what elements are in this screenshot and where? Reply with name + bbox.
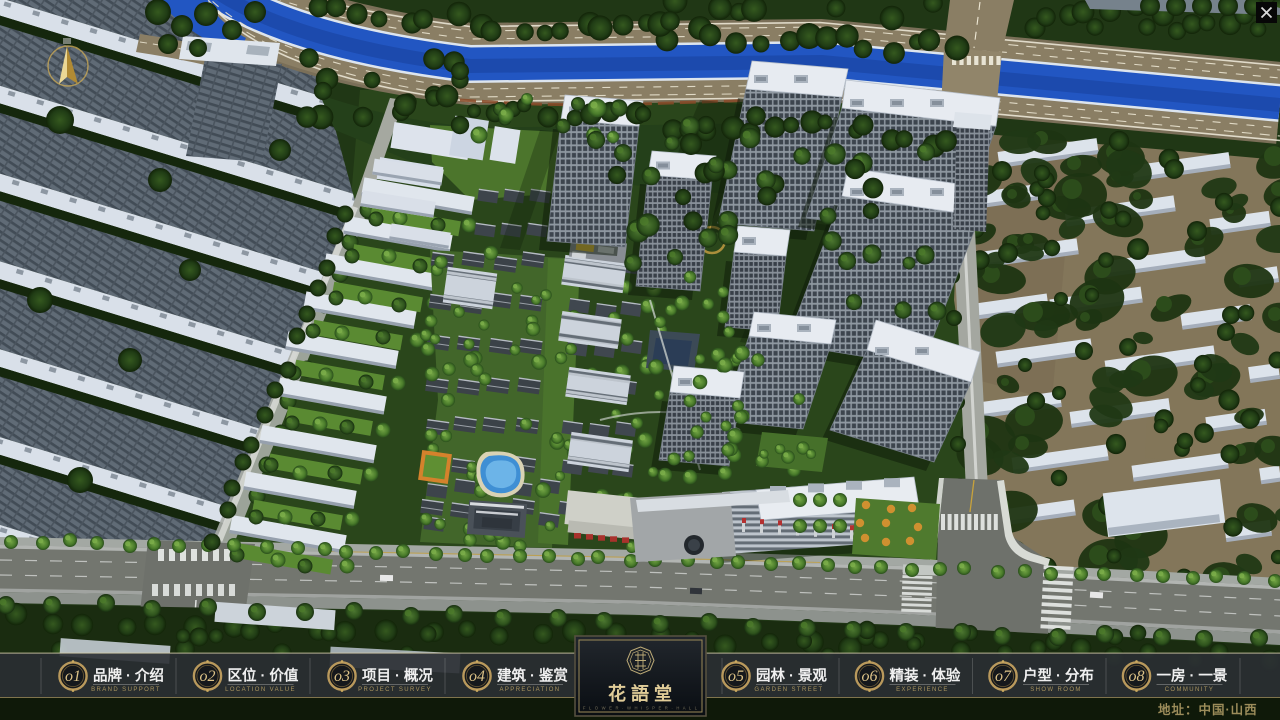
svg-text:o4: o4 xyxy=(469,668,485,685)
svg-text:o3: o3 xyxy=(334,668,350,685)
svg-text:APPRECIATION: APPRECIATION xyxy=(499,687,560,693)
svg-text:项目 · 概况: 项目 · 概况 xyxy=(362,667,433,685)
svg-text:o1: o1 xyxy=(65,668,81,685)
svg-text:一房 · 一景: 一房 · 一景 xyxy=(1157,667,1228,685)
svg-text:BRAND SUPPORT: BRAND SUPPORT xyxy=(91,687,161,693)
svg-text:o8: o8 xyxy=(1129,668,1145,685)
svg-text:COMMUNITY: COMMUNITY xyxy=(1165,687,1215,693)
svg-text:品牌 · 介绍: 品牌 · 介绍 xyxy=(93,667,164,685)
svg-text:o7: o7 xyxy=(995,668,1012,685)
svg-text:o6: o6 xyxy=(862,668,878,685)
svg-text:区位 · 价值: 区位 · 价值 xyxy=(228,667,299,685)
svg-text:花語堂: 花語堂 xyxy=(608,683,677,704)
svg-text:户型 · 分布: 户型 · 分布 xyxy=(1023,667,1094,685)
svg-text:园林 · 景观: 园林 · 景观 xyxy=(756,667,827,685)
svg-text:EXPERIENCE: EXPERIENCE xyxy=(896,687,949,693)
svg-text:SHOW ROOM: SHOW ROOM xyxy=(1030,687,1082,693)
svg-text:地址：中国·山西: 地址：中国·山西 xyxy=(1158,702,1258,717)
svg-text:建筑 · 鉴赏: 建筑 · 鉴赏 xyxy=(497,667,568,685)
svg-text:o5: o5 xyxy=(728,668,744,685)
svg-text:GARDEN STREET: GARDEN STREET xyxy=(754,687,823,693)
svg-text:LOCATION VALUE: LOCATION VALUE xyxy=(225,687,296,693)
svg-text:o2: o2 xyxy=(200,668,216,685)
svg-text:精装 · 体验: 精装 · 体验 xyxy=(890,667,961,685)
svg-text:PROJECT SURVEY: PROJECT SURVEY xyxy=(358,687,432,693)
svg-text:F L O W E R · W H I S P E R ·: F L O W E R · W H I S P E R · H A L L xyxy=(583,706,698,711)
